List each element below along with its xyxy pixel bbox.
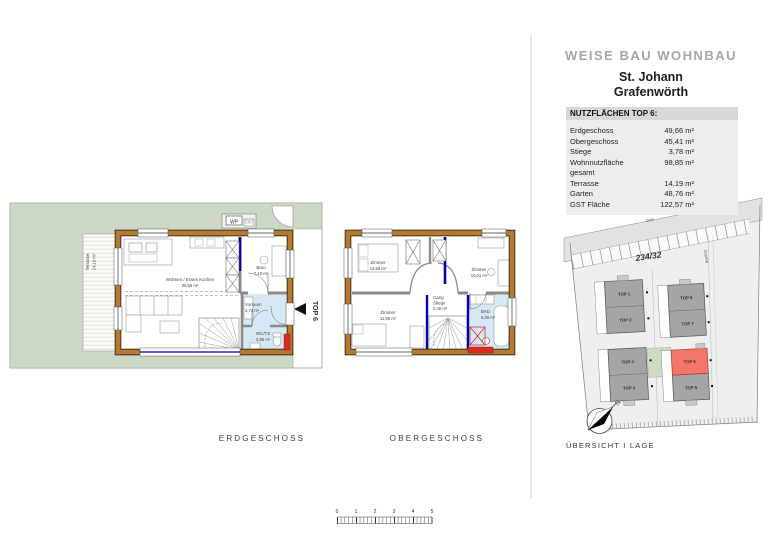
row-value: 3,78 m² bbox=[636, 147, 694, 158]
og-room3-name: Zimmer bbox=[381, 310, 396, 315]
project-name: St. Johann Grafenwörth bbox=[560, 70, 742, 100]
areas-table-title: NUTZFLÄCHEN TOP 6: bbox=[566, 107, 738, 120]
row-label: Stiege bbox=[570, 147, 636, 158]
table-row: Wohnnutzfläche gesamt98,85 m² bbox=[566, 158, 738, 179]
table-row: Garten48,76 m² bbox=[566, 189, 738, 200]
heat-pump-unit: WP bbox=[222, 214, 256, 228]
og-bad-name: BAD bbox=[481, 309, 490, 314]
table-row: GST Fläche122,57 m² bbox=[566, 200, 738, 211]
eg-room-vorraum-area: 3,74 m² bbox=[245, 308, 260, 313]
og-room2-area: 10,01 m² bbox=[471, 273, 488, 278]
top6-marker-label: TOP 6 bbox=[311, 301, 318, 321]
row-value: 49,66 m² bbox=[636, 126, 694, 137]
eg-room-vorraum-name: Vorraum bbox=[245, 302, 262, 307]
wp-label: WP bbox=[230, 219, 239, 225]
building-label-top7: TOP 7 bbox=[681, 321, 694, 327]
obergeschoss-plan: Zimmer 14,58 m² Zimmer 10,01 m² Zimmer 1… bbox=[344, 229, 516, 443]
og-gang-name: Gang bbox=[433, 295, 444, 300]
eg-entrance-door bbox=[284, 334, 290, 350]
row-label: GST Fläche bbox=[570, 200, 636, 211]
og-caption: OBERGESCHOSS bbox=[390, 434, 484, 443]
og-room2-name: Zimmer bbox=[472, 267, 487, 272]
building-label-top5: TOP 5 bbox=[685, 385, 698, 391]
og-gang-area: 2,48 m² bbox=[433, 306, 448, 311]
eg-shaft-cabinets bbox=[226, 241, 239, 292]
building-label-top6: TOP 6 bbox=[683, 359, 696, 365]
terrace-name: Terrasse bbox=[85, 253, 90, 270]
scale-tick-0: 0 bbox=[336, 509, 339, 515]
row-label: Wohnnutzfläche gesamt bbox=[570, 158, 636, 179]
table-row: Erdgeschoss49,66 m² bbox=[566, 126, 738, 137]
project-name-line2: Grafenwörth bbox=[560, 85, 742, 100]
building-label-top8: TOP 8 bbox=[680, 295, 693, 301]
og-room3-area: 11,65 m² bbox=[380, 316, 397, 321]
eg-room-buero-area: 7,10 m² bbox=[254, 271, 269, 276]
scale-tick-1: 1 bbox=[355, 509, 358, 515]
eg-room-buero-name: Büro bbox=[256, 265, 266, 270]
og-room1-area: 14,58 m² bbox=[370, 266, 387, 271]
og-bad-area: 6,09 m² bbox=[481, 315, 496, 320]
og-gang-name2: Stiege bbox=[433, 301, 446, 306]
project-name-line1: St. Johann bbox=[560, 70, 742, 85]
scale-tick-2: 2 bbox=[374, 509, 377, 515]
row-label: Erdgeschoss bbox=[570, 126, 636, 137]
company-name: WEISE BAU WOHNBAU bbox=[560, 48, 742, 63]
areas-table: NUTZFLÄCHEN TOP 6: Erdgeschoss49,66 m² O… bbox=[566, 107, 738, 215]
info-panel: WEISE BAU WOHNBAU St. Johann Grafenwörth bbox=[560, 48, 742, 100]
og-stair bbox=[429, 316, 467, 352]
row-value: 98,85 m² bbox=[636, 158, 694, 179]
eg-room-wc-area: 2,86 m² bbox=[256, 337, 271, 342]
erdgeschoss-plan: WP Terrasse 14,19 m² bbox=[10, 203, 322, 443]
row-value: 14,19 m² bbox=[636, 179, 694, 190]
eg-stair bbox=[199, 318, 239, 352]
areas-table-rows: Erdgeschoss49,66 m² Obergeschoss45,41 m²… bbox=[566, 120, 738, 210]
eg-room-wohnen-name: Wohnen / Essen Kochen bbox=[166, 277, 215, 282]
row-value: 45,41 m² bbox=[636, 137, 694, 148]
row-value: 48,76 m² bbox=[636, 189, 694, 200]
table-row: Terrasse14,19 m² bbox=[566, 179, 738, 190]
eg-caption: ERDGESCHOSS bbox=[219, 434, 305, 443]
building-label-top1: TOP 1 bbox=[618, 291, 631, 297]
siteplan: Zeile 234/32 Zugang bbox=[564, 198, 762, 450]
table-row: Stiege3,78 m² bbox=[566, 147, 738, 158]
building-label-top2: TOP 2 bbox=[619, 317, 632, 323]
row-label: Terrasse bbox=[570, 179, 636, 190]
building-label-top3: TOP 3 bbox=[621, 359, 634, 365]
scale-tick-4: 4 bbox=[412, 509, 415, 515]
og-room1-name: Zimmer bbox=[371, 260, 386, 265]
table-row: Obergeschoss45,41 m² bbox=[566, 137, 738, 148]
scale-bar: 0 1 2 3 4 5 bbox=[336, 509, 434, 524]
building-label-top4: TOP 4 bbox=[623, 385, 636, 391]
siteplan-caption: ÜBERSICHT I LAGE bbox=[566, 441, 655, 450]
row-label: Obergeschoss bbox=[570, 137, 636, 148]
og-red-wall-mark bbox=[468, 347, 493, 353]
scale-tick-5: 5 bbox=[431, 509, 434, 515]
scale-tick-3: 3 bbox=[393, 509, 396, 515]
eg-room-wohnen-area: 35,56 m² bbox=[182, 283, 199, 288]
eg-room-wc-name: WC/TS bbox=[256, 331, 270, 336]
row-value: 122,57 m² bbox=[636, 200, 694, 211]
row-label: Garten bbox=[570, 189, 636, 200]
floorplan-sheet: WP Terrasse 14,19 m² bbox=[0, 0, 768, 543]
terrace-area: 14,19 m² bbox=[92, 253, 97, 270]
